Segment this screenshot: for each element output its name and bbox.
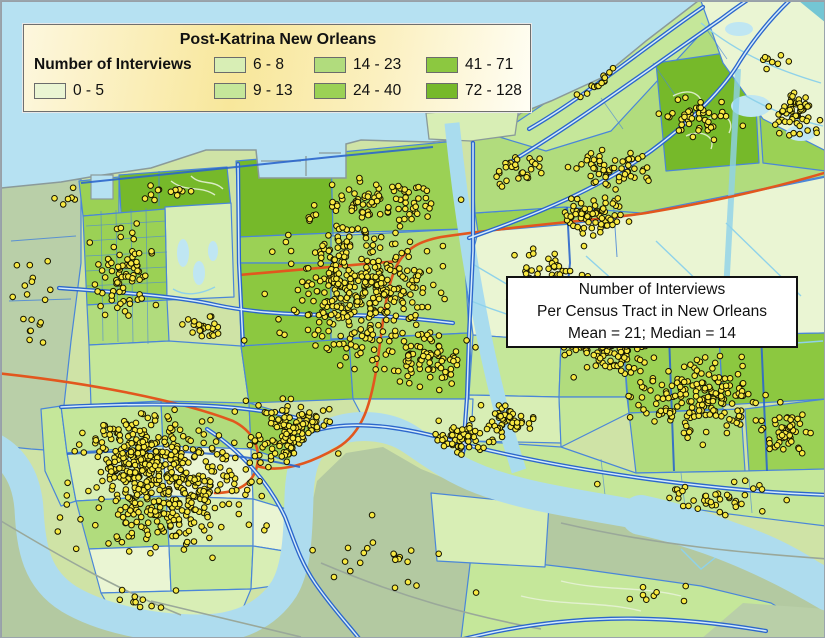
legend-range: 0 - 5 (73, 82, 104, 100)
legend-swatch (214, 57, 246, 73)
lakefront-spit (426, 107, 519, 141)
legend-title: Post-Katrina New Orleans (34, 31, 522, 49)
legend-range: 72 - 128 (465, 82, 522, 100)
anno-line3: Mean = 21; Median = 14 (508, 323, 796, 345)
legend-swatch (314, 83, 346, 99)
anno-line1: Number of Interviews (508, 279, 796, 301)
legend-swatch (426, 83, 458, 99)
legend-box: Post-Katrina New Orleans Number of Inter… (23, 24, 531, 112)
legend-swatch (214, 83, 246, 99)
legend-item: 41 - 71 (426, 56, 534, 74)
legend-swatch (314, 57, 346, 73)
legend-item: 24 - 40 (314, 82, 426, 100)
legend-grid: Number of Interviews 6 - 8 14 - 23 41 - … (34, 52, 522, 104)
legend-item: 14 - 23 (314, 56, 426, 74)
legend-range: 14 - 23 (353, 56, 401, 74)
legend-item: 9 - 13 (214, 82, 314, 100)
legend-range: 6 - 8 (253, 56, 284, 74)
west-end-harbor (91, 175, 113, 199)
anno-line2: Per Census Tract in New Orleans (508, 301, 796, 323)
legend-swatch (34, 83, 66, 99)
map-stage: Post-Katrina New Orleans Number of Inter… (0, 0, 825, 638)
legend-item: 6 - 8 (214, 56, 314, 74)
stats-annotation-box: Number of Interviews Per Census Tract in… (506, 276, 798, 348)
legend-item: 0 - 5 (34, 82, 214, 100)
legend-item: 72 - 128 (426, 82, 534, 100)
legend-range: 24 - 40 (353, 82, 401, 100)
legend-label: Number of Interviews (34, 56, 214, 74)
legend-swatch (426, 57, 458, 73)
legend-range: 9 - 13 (253, 82, 293, 100)
legend-range: 41 - 71 (465, 56, 513, 74)
